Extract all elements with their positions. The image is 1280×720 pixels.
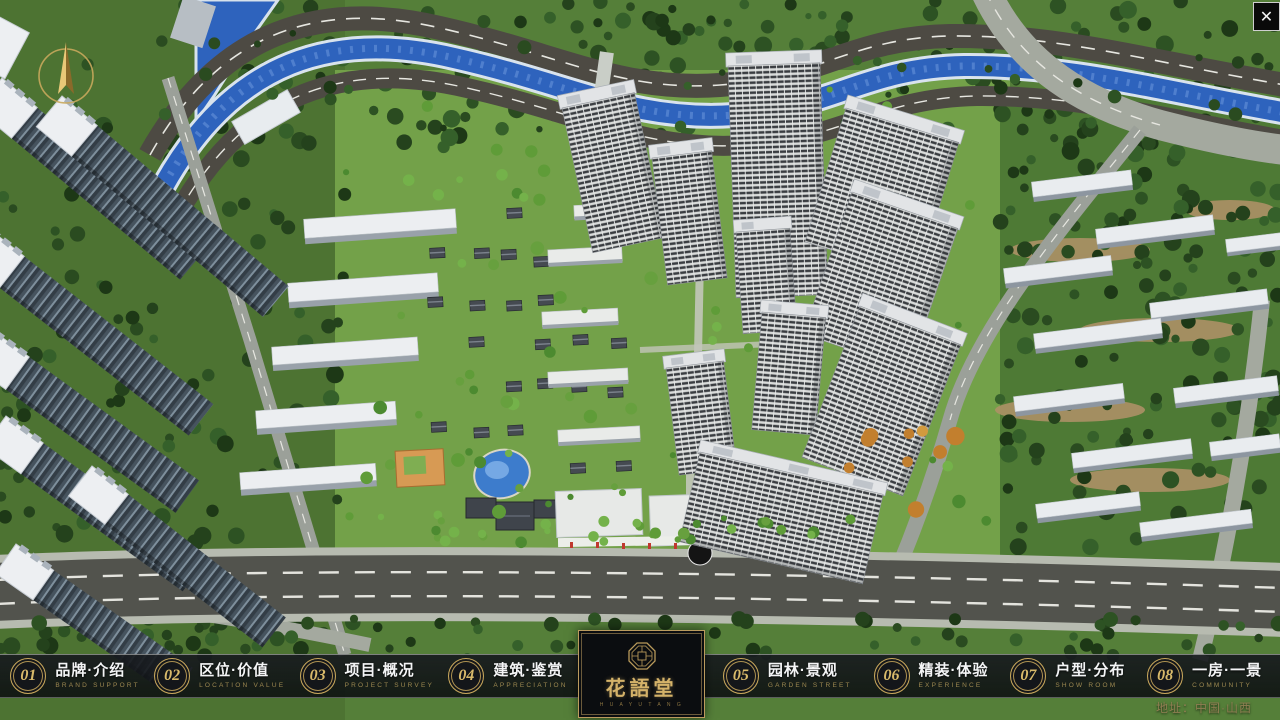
nav-label-en: COMMUNITY xyxy=(1192,682,1262,689)
nav-item-views[interactable]: 08 一房·一景COMMUNITY xyxy=(1143,658,1266,694)
nav-item-architecture[interactable]: 04 建筑·鉴赏APPRECIATION xyxy=(444,658,571,694)
nav-label-en: PROJECT SURVEY xyxy=(345,682,434,689)
nav-badge-05: 05 xyxy=(723,658,759,694)
nav-item-floorplan[interactable]: 07 户型·分布SHOW ROOM xyxy=(1006,658,1129,694)
nav-label-en: BRAND SUPPORT xyxy=(55,682,139,689)
nav-label-zh: 项目·概况 xyxy=(345,663,434,680)
nav-group-left: 01 品牌·介绍BRAND SUPPORT 02 区位·价值LOCATION V… xyxy=(0,655,578,697)
project-title: 花語堂 xyxy=(606,672,678,701)
nav-badge-06: 06 xyxy=(874,658,910,694)
nav-label-en: GARDEN STREET xyxy=(768,682,852,689)
close-button[interactable]: ✕ xyxy=(1253,2,1280,31)
nav-item-project[interactable]: 03 项目·概况PROJECT SURVEY xyxy=(296,658,438,694)
nav-item-garden[interactable]: 05 园林·景观GARDEN STREET xyxy=(719,658,856,694)
sales-presentation-window: ✕ 01 品牌·介绍BRAND SUPPORT 02 区位·价值LOCATION… xyxy=(0,0,1280,720)
nav-label-zh: 户型·分布 xyxy=(1055,663,1125,680)
nav-badge-01: 01 xyxy=(10,658,46,694)
nav-group-right: 05 园林·景观GARDEN STREET 06 精装·体验EXPERIENCE… xyxy=(705,655,1280,697)
nav-label-zh: 区位·价值 xyxy=(199,663,285,680)
project-logo-panel: 花語堂 H U A Y U T A N G xyxy=(578,630,705,718)
nav-badge-07: 07 xyxy=(1010,658,1046,694)
nav-label-en: LOCATION VALUE xyxy=(199,682,285,689)
project-subtitle: H U A Y U T A N G xyxy=(600,702,684,708)
compass-north-indicator[interactable] xyxy=(34,38,98,108)
nav-label-en: SHOW ROOM xyxy=(1055,682,1125,689)
nav-label-zh: 精装·体验 xyxy=(919,663,989,680)
nav-badge-03: 03 xyxy=(300,658,336,694)
nav-item-interior[interactable]: 06 精装·体验EXPERIENCE xyxy=(870,658,993,694)
nav-label-zh: 园林·景观 xyxy=(768,663,852,680)
nav-badge-02: 02 xyxy=(154,658,190,694)
masterplan-3d-viewport[interactable] xyxy=(0,0,1280,720)
nav-label-zh: 品牌·介绍 xyxy=(55,663,139,680)
nav-label-zh: 一房·一景 xyxy=(1192,663,1262,680)
nav-label-zh: 建筑·鉴赏 xyxy=(493,663,567,680)
nav-label-en: EXPERIENCE xyxy=(919,682,989,689)
nav-badge-08: 08 xyxy=(1147,658,1183,694)
octagonal-seal-icon xyxy=(627,641,657,671)
nav-badge-04: 04 xyxy=(448,658,484,694)
nav-label-en: APPRECIATION xyxy=(493,682,567,689)
nav-item-location[interactable]: 02 区位·价值LOCATION VALUE xyxy=(150,658,289,694)
project-address: 地址：中国·山西 xyxy=(1156,699,1252,716)
nav-item-brand[interactable]: 01 品牌·介绍BRAND SUPPORT xyxy=(6,658,143,694)
